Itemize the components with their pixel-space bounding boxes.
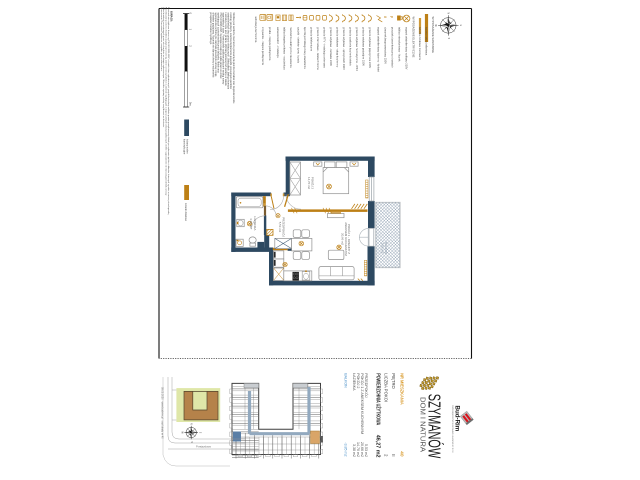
svg-text:tablica bezpiecznikowa - rozdz: tablica bezpiecznikowa - rozdzielcza xyxy=(283,27,287,70)
svg-text:WYPOSAŻENIE ELEKTRYCZNE: WYPOSAŻENIE ELEKTRYCZNE xyxy=(412,17,417,58)
svg-text:NR MIESZKANIA: NR MIESZKANIA xyxy=(398,373,404,405)
svg-text:S: S xyxy=(447,38,449,40)
svg-text:N: N xyxy=(189,423,191,425)
svg-text:2: 2 xyxy=(188,45,192,47)
svg-text:LICZBA POKOI: LICZBA POKOI xyxy=(384,373,389,402)
svg-text:rozdzielnia elektryczna mieszk: rozdzielnia elektryczna mieszkania xyxy=(289,27,293,68)
svg-text:E: E xyxy=(459,25,461,27)
svg-text:pralka - miejsce podłączenia: pralka - miejsce podłączenia xyxy=(268,27,272,61)
svg-text:gniazdo internetowe - teletech: gniazdo internetowe - teletechniczne xyxy=(316,27,320,70)
svg-text:8: 8 xyxy=(383,16,387,18)
svg-text:5m: 5m xyxy=(188,102,192,106)
svg-text:wideodomofon - instalacja: wideodomofon - instalacja xyxy=(276,27,280,58)
svg-text:gniazdo wtykowe - sprzęt AGD 2: gniazdo wtykowe - sprzęt AGD 230V xyxy=(342,27,346,70)
svg-text:Bud-Rim: Bud-Rim xyxy=(453,406,460,432)
svg-text:2: 2 xyxy=(384,454,389,457)
svg-text:-3,85 m2: -3,85 m2 xyxy=(344,442,348,456)
svg-text:Możliwe jest wzdłużne nieznacz: Możliwe jest wzdłużne nieznaczne przesun… xyxy=(232,13,235,105)
svg-text:gniazdo wtykowe - okap kuchenn: gniazdo wtykowe - okap kuchenny xyxy=(336,27,340,68)
svg-text:Powierzchnia użytkowa liczona: Powierzchnia użytkowa liczona wg PN-ISO … xyxy=(167,7,170,215)
svg-text:PRZEDPOKÓJ: PRZEDPOKÓJ xyxy=(282,217,287,237)
svg-text:46,27 m2: 46,27 m2 xyxy=(375,435,381,458)
svg-text:ścianki działowe: ścianki działowe xyxy=(184,203,187,222)
svg-text:0: 0 xyxy=(188,13,192,15)
svg-text:POWIERZCHNIA UŻYTKOWA: POWIERZCHNIA UŻYTKOWA xyxy=(375,373,382,425)
svg-text:N: N xyxy=(447,12,449,14)
svg-text:ŁAZIENKA: ŁAZIENKA xyxy=(352,373,356,391)
svg-text:PIĘTRO: PIĘTRO xyxy=(391,373,396,389)
svg-text:Przejazdowa: Przejazdowa xyxy=(196,445,211,449)
svg-text:łącznik jednobiegunowy oświetl: łącznik jednobiegunowy oświetlenia xyxy=(303,27,307,69)
svg-text:czujnik - detektor dymu i czad: czujnik - detektor dymu i czadu xyxy=(297,27,301,64)
svg-text:ŁAZIENKA: ŁAZIENKA xyxy=(253,217,257,231)
svg-text:POKÓJ 1 - DZIENNY Z: POKÓJ 1 - DZIENNY Z xyxy=(347,224,352,254)
svg-text:adnotacja techniczna: adnotacja techniczna xyxy=(254,17,258,43)
svg-text:gniazdo wtykowe hermetyczne -: gniazdo wtykowe hermetyczne - IP44 xyxy=(355,27,359,71)
svg-text:20,66 m2: 20,66 m2 xyxy=(360,442,364,457)
svg-text:ścianka działowa murowana: ścianka działowa murowana xyxy=(418,27,422,61)
svg-text:UWAGI:: UWAGI: xyxy=(169,11,173,22)
svg-text:konstrukcyjne: konstrukcyjne xyxy=(182,139,185,155)
svg-text:ściany nośne: ściany nośne xyxy=(185,139,188,154)
svg-text:gniazdo wtykowe pojedyncze 230: gniazdo wtykowe pojedyncze 230V xyxy=(368,27,372,68)
svg-text:gniazdo zasilania kuchenki ele: gniazdo zasilania kuchenki elektr. xyxy=(349,27,353,66)
svg-text:W: W xyxy=(180,431,182,434)
svg-text:1: 1 xyxy=(188,29,192,31)
svg-text:SZYMANÓW: SZYMANÓW xyxy=(425,394,446,459)
svg-text:zmywarka - miejsce podłączenia: zmywarka - miejsce podłączenia xyxy=(261,27,265,66)
svg-text:tablica mieszkaniowa - licznik: tablica mieszkaniowa - licznik xyxy=(398,27,402,62)
svg-text:przycisk dzwonkowy przy drzwia: przycisk dzwonkowy przy drzwiach xyxy=(391,27,395,68)
svg-text:gniazdo wtykowe - lodówka 230V: gniazdo wtykowe - lodówka 230V xyxy=(329,27,333,66)
svg-text:E: E xyxy=(198,432,200,434)
svg-text:20,66 m2: 20,66 m2 xyxy=(340,233,344,245)
svg-text:3,38 m2: 3,38 m2 xyxy=(352,444,356,457)
svg-text:3,38 m2: 3,38 m2 xyxy=(249,218,253,229)
svg-text:POKÓJ 2: POKÓJ 2 xyxy=(310,177,315,190)
svg-text:5,53 m2: 5,53 m2 xyxy=(364,444,368,457)
svg-text:08.05.2020 www.bud-rim.pl: 08.05.2020 www.bud-rim.pl rzut lokalu nr… xyxy=(160,387,163,439)
svg-text:14,70 m2: 14,70 m2 xyxy=(356,442,360,457)
svg-text:3,85 m2: 3,85 m2 xyxy=(381,243,385,254)
svg-text:wypust oświetleniowy ścienny -: wypust oświetleniowy ścienny - kinkiet xyxy=(377,27,381,72)
svg-text:5,53 m2: 5,53 m2 xyxy=(278,222,282,233)
svg-text:gniazdo telefoniczne: gniazdo telefoniczne xyxy=(310,27,314,52)
svg-text:W: W xyxy=(434,24,436,27)
svg-text:II: II xyxy=(391,454,396,456)
svg-text:gniazdo RTV - instalacja anten: gniazdo RTV - instalacja antenowa xyxy=(323,27,327,68)
svg-text:BALKON: BALKON xyxy=(344,373,348,388)
svg-text:14,70 m2: 14,70 m2 xyxy=(307,177,311,189)
svg-text:PRZEDPOKÓJ: PRZEDPOKÓJ xyxy=(364,373,369,398)
svg-text:p: p xyxy=(390,16,394,18)
svg-text:40: 40 xyxy=(398,451,404,457)
svg-text:WYPOSAŻENIE SANITARNE: WYPOSAŻENIE SANITARNE xyxy=(431,17,436,54)
svg-text:DOM I NATURA: DOM I NATURA xyxy=(418,397,425,452)
svg-text:gniazdo wtykowe podwójne 230V: gniazdo wtykowe podwójne 230V xyxy=(362,27,366,66)
svg-text:BALKON: BALKON xyxy=(384,242,388,254)
svg-text:wypust oświetleniowy sufitowy: wypust oświetleniowy sufitowy 230V xyxy=(405,27,409,70)
svg-text:dzwonek bezprzewodowy 230V: dzwonek bezprzewodowy 230V xyxy=(384,27,388,64)
